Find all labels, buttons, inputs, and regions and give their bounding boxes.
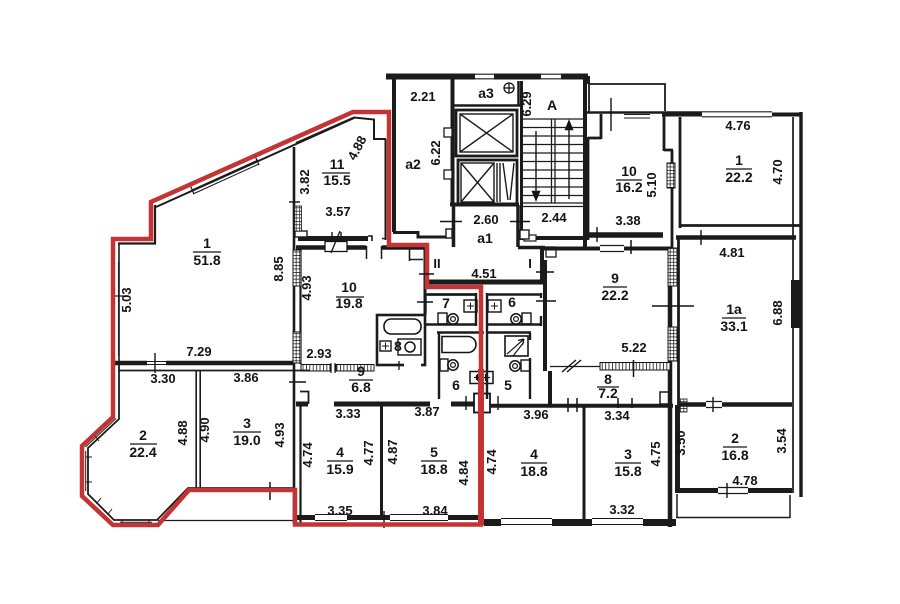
svg-text:8: 8 <box>394 338 402 354</box>
svg-text:4.84: 4.84 <box>456 460 471 486</box>
svg-text:10: 10 <box>621 163 637 179</box>
svg-text:2: 2 <box>139 427 147 443</box>
svg-text:22.4: 22.4 <box>129 444 156 460</box>
svg-text:6: 6 <box>452 377 460 393</box>
svg-text:a2: a2 <box>405 156 421 172</box>
svg-text:5: 5 <box>430 444 438 460</box>
svg-text:3.30: 3.30 <box>150 371 175 386</box>
svg-text:22.2: 22.2 <box>601 287 628 303</box>
svg-text:6.29: 6.29 <box>519 91 534 116</box>
svg-text:4.81: 4.81 <box>719 245 744 260</box>
svg-text:3.96: 3.96 <box>523 407 548 422</box>
svg-text:6: 6 <box>508 294 516 310</box>
svg-text:9: 9 <box>611 270 619 286</box>
svg-text:3.54: 3.54 <box>774 428 789 454</box>
svg-text:5.10: 5.10 <box>644 172 659 197</box>
svg-text:2.21: 2.21 <box>410 89 435 104</box>
svg-text:3.33: 3.33 <box>335 406 360 421</box>
svg-text:3.57: 3.57 <box>325 204 350 219</box>
svg-text:51.8: 51.8 <box>193 252 220 268</box>
svg-text:4.70: 4.70 <box>770 159 785 184</box>
svg-text:4.93: 4.93 <box>272 422 287 447</box>
svg-text:4.74: 4.74 <box>300 442 315 468</box>
svg-text:3.84: 3.84 <box>422 503 448 518</box>
svg-text:3.32: 3.32 <box>609 502 634 517</box>
svg-text:3.34: 3.34 <box>604 408 630 423</box>
svg-text:19.0: 19.0 <box>233 432 260 448</box>
svg-text:4.74: 4.74 <box>484 449 499 475</box>
svg-text:II: II <box>433 256 440 271</box>
svg-text:4.75: 4.75 <box>648 441 663 466</box>
svg-text:A: A <box>547 97 557 113</box>
svg-text:5.03: 5.03 <box>119 287 134 312</box>
svg-text:2: 2 <box>731 430 739 446</box>
svg-text:33.1: 33.1 <box>720 318 747 334</box>
svg-text:16.8: 16.8 <box>721 447 748 463</box>
svg-text:3: 3 <box>624 446 632 462</box>
svg-text:I: I <box>528 256 532 271</box>
svg-text:15.5: 15.5 <box>323 172 350 188</box>
svg-text:6.88: 6.88 <box>770 300 785 325</box>
svg-text:8.85: 8.85 <box>271 256 286 281</box>
svg-text:7.29: 7.29 <box>186 344 211 359</box>
svg-text:4.88: 4.88 <box>175 420 190 445</box>
svg-text:4: 4 <box>530 446 538 462</box>
svg-text:3.86: 3.86 <box>233 370 258 385</box>
svg-text:a1: a1 <box>477 230 493 246</box>
svg-text:1: 1 <box>735 152 743 168</box>
svg-text:7: 7 <box>442 295 450 311</box>
svg-text:5.22: 5.22 <box>621 340 646 355</box>
svg-text:a3: a3 <box>478 85 494 101</box>
svg-text:6.8: 6.8 <box>351 379 371 395</box>
svg-text:2.44: 2.44 <box>541 210 567 225</box>
svg-text:6.22: 6.22 <box>428 140 443 165</box>
svg-text:3.82: 3.82 <box>297 169 312 194</box>
svg-text:4.51: 4.51 <box>471 266 496 281</box>
svg-text:9: 9 <box>357 363 365 379</box>
svg-text:18.8: 18.8 <box>520 463 547 479</box>
svg-text:1a: 1a <box>726 301 742 317</box>
svg-text:3.87: 3.87 <box>414 404 439 419</box>
svg-text:10: 10 <box>341 279 357 295</box>
svg-text:11: 11 <box>330 156 345 172</box>
svg-text:3.35: 3.35 <box>327 503 352 518</box>
svg-text:4.90: 4.90 <box>197 417 212 442</box>
svg-text:15.9: 15.9 <box>326 461 353 477</box>
svg-text:5: 5 <box>504 377 512 393</box>
svg-text:2.93: 2.93 <box>306 346 331 361</box>
svg-text:4: 4 <box>336 444 344 460</box>
svg-text:4.87: 4.87 <box>385 439 400 464</box>
svg-text:4.77: 4.77 <box>361 440 376 465</box>
svg-text:15.8: 15.8 <box>614 463 641 479</box>
svg-text:1: 1 <box>203 235 211 251</box>
svg-text:3.38: 3.38 <box>615 213 640 228</box>
svg-text:4.76: 4.76 <box>725 118 750 133</box>
svg-text:4.78: 4.78 <box>732 473 757 488</box>
svg-text:4.93: 4.93 <box>299 275 314 300</box>
svg-text:18.8: 18.8 <box>420 461 447 477</box>
svg-text:3.50: 3.50 <box>673 430 688 455</box>
svg-text:3: 3 <box>243 415 251 431</box>
svg-text:16.2: 16.2 <box>615 179 642 195</box>
svg-text:22.2: 22.2 <box>725 169 752 185</box>
svg-text:2.60: 2.60 <box>473 212 498 227</box>
